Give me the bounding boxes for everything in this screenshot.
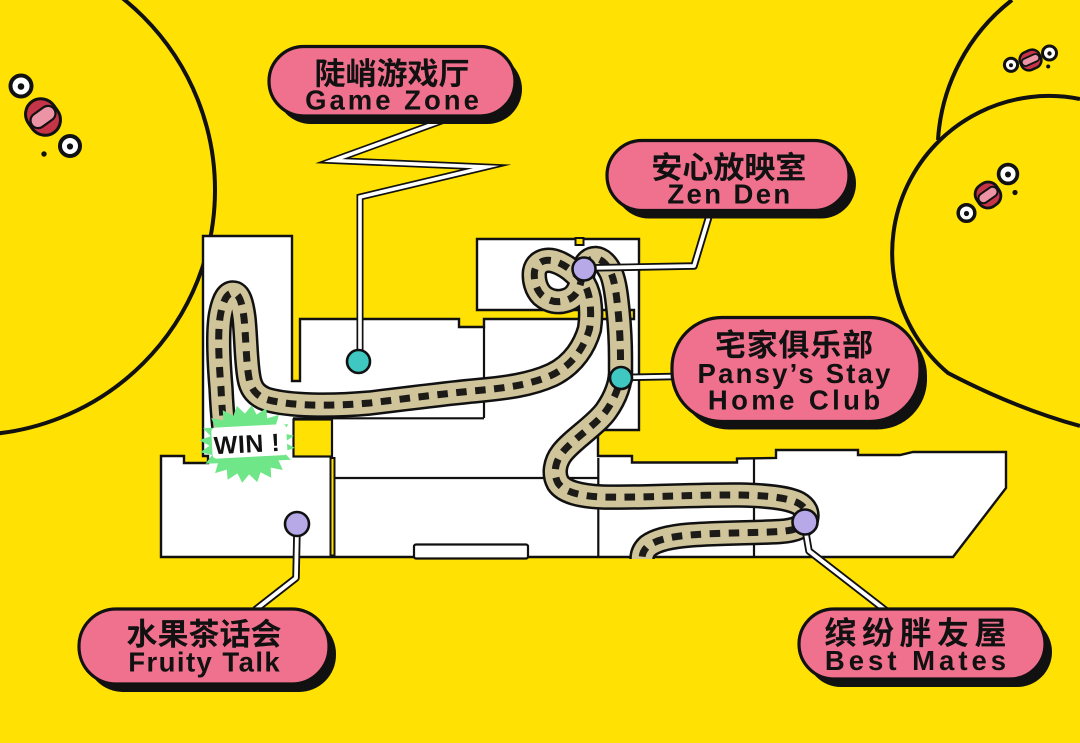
svg-text:Fruity Talk: Fruity Talk: [128, 646, 281, 677]
svg-text:WIN !: WIN !: [213, 429, 281, 460]
svg-text:Home Club: Home Club: [708, 384, 884, 415]
svg-text:Zen Den: Zen Den: [667, 178, 792, 209]
svg-text:Game Zone: Game Zone: [305, 84, 482, 115]
svg-text:Best Mates: Best Mates: [825, 645, 1010, 676]
